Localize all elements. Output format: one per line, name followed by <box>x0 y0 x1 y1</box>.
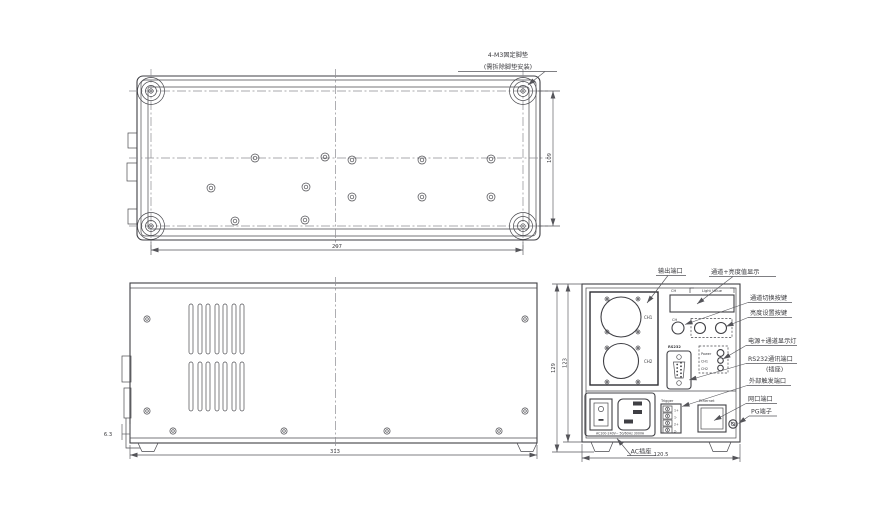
callout-pg: PG端子 <box>739 408 778 424</box>
db9-pins <box>676 362 682 378</box>
brightness-up-button <box>695 323 706 334</box>
foot <box>709 442 731 452</box>
foot-pad <box>138 78 165 105</box>
trigger-terminal: Trigger 1+ 1- 2+ 2- <box>660 399 681 434</box>
callout-ac-socket: AC插座 <box>617 439 656 456</box>
rear-view: CH1 CH2 CH Light Value CH RS232 <box>551 284 740 462</box>
svg-text:297: 297 <box>332 244 342 250</box>
power-led <box>717 350 724 357</box>
svg-text:6.3: 6.3 <box>104 432 112 438</box>
foot <box>517 443 537 452</box>
svg-text:外部触发端口: 外部触发端口 <box>749 377 786 385</box>
svg-text:RS232: RS232 <box>668 345 681 349</box>
svg-text:(需拆除脚垫安装): (需拆除脚垫安装) <box>484 63 532 71</box>
db9-shell <box>674 362 685 378</box>
dimension-side-length: 313 <box>130 445 537 459</box>
svg-text:4-M3固定脚垫: 4-M3固定脚垫 <box>488 51 529 59</box>
ch1-led <box>718 358 724 364</box>
svg-text:Power: Power <box>701 352 712 356</box>
dimension-rear-heights: 129 123 <box>551 284 594 452</box>
svg-text:1+: 1+ <box>674 409 679 413</box>
dimension-rear-width: 120.5 <box>582 444 740 462</box>
svg-text:RS232通讯端口: RS232通讯端口 <box>748 355 793 363</box>
svg-text:CH: CH <box>671 289 677 293</box>
ethernet-connector: Ethernet <box>698 399 726 432</box>
callout-output-port: 输出端口 <box>647 267 686 303</box>
svg-text:313: 313 <box>330 449 340 455</box>
svg-text:通道切换按键: 通道切换按键 <box>750 294 787 302</box>
drawing-sheet: 4-M3固定脚垫 (需拆除脚垫安装) 297 109 <box>0 0 888 522</box>
mounting-holes <box>207 153 495 225</box>
foot <box>591 442 613 452</box>
channel-button <box>672 322 684 334</box>
svg-text:1-: 1- <box>674 416 677 420</box>
ch2-led <box>718 365 724 371</box>
foot <box>138 443 158 452</box>
edge-tab <box>127 163 137 181</box>
power-switch <box>590 399 612 430</box>
ac-inlet-module: AC100-240V~ 50/60Hz 300VA <box>585 393 655 436</box>
svg-text:AC100-240V~ 50/60Hz 300VA: AC100-240V~ 50/60Hz 300VA <box>596 432 645 436</box>
iec-inlet <box>618 399 650 430</box>
dimension-top-width: 297 <box>151 242 523 255</box>
svg-text:2+: 2+ <box>674 423 679 427</box>
svg-text:123: 123 <box>563 358 569 368</box>
top-view: 4-M3固定脚垫 (需拆除脚垫安装) 297 109 <box>127 51 560 255</box>
svg-text:CH2: CH2 <box>644 359 653 364</box>
svg-text:CH1: CH1 <box>644 315 653 320</box>
svg-text:CH2: CH2 <box>701 367 708 371</box>
svg-text:AC插座: AC插座 <box>631 448 652 456</box>
svg-text:CH1: CH1 <box>701 360 708 364</box>
svg-text:109: 109 <box>547 153 553 163</box>
foot-pad <box>510 213 537 240</box>
led-indicators: Power CH1 CH2 <box>699 346 728 373</box>
side-view: 6.3 313 <box>104 277 537 459</box>
svg-text:PG端子: PG端子 <box>751 408 772 416</box>
foot-pad <box>138 213 165 240</box>
edge-tab <box>128 209 137 224</box>
svg-text:129: 129 <box>551 363 557 373</box>
side-screws <box>144 316 528 434</box>
svg-text:亮度设置按键: 亮度设置按键 <box>750 309 787 317</box>
svg-text:Ethernet: Ethernet <box>699 399 715 403</box>
svg-text:通道+亮度值显示: 通道+亮度值显示 <box>711 268 760 276</box>
output-port-panel: CH1 CH2 <box>590 292 658 385</box>
svg-text:(插座): (插座) <box>766 366 783 374</box>
svg-text:CH: CH <box>672 318 678 322</box>
svg-text:Trigger: Trigger <box>660 399 674 403</box>
brightness-down-button <box>716 323 727 334</box>
svg-text:输出端口: 输出端口 <box>658 267 683 275</box>
dimension-top-depth: 109 <box>538 91 560 226</box>
svg-text:网口端口: 网口端口 <box>748 395 773 403</box>
svg-text:2-: 2- <box>674 430 677 434</box>
vent-slots <box>189 304 244 411</box>
svg-text:电源+通道显示灯: 电源+通道显示灯 <box>748 337 797 345</box>
edge-tab <box>128 133 137 148</box>
rs232-connector: RS232 <box>667 345 691 389</box>
svg-text:120.5: 120.5 <box>654 452 669 458</box>
technical-drawing: 4-M3固定脚垫 (需拆除脚垫安装) 297 109 <box>0 0 888 522</box>
buttons: CH <box>672 318 732 338</box>
